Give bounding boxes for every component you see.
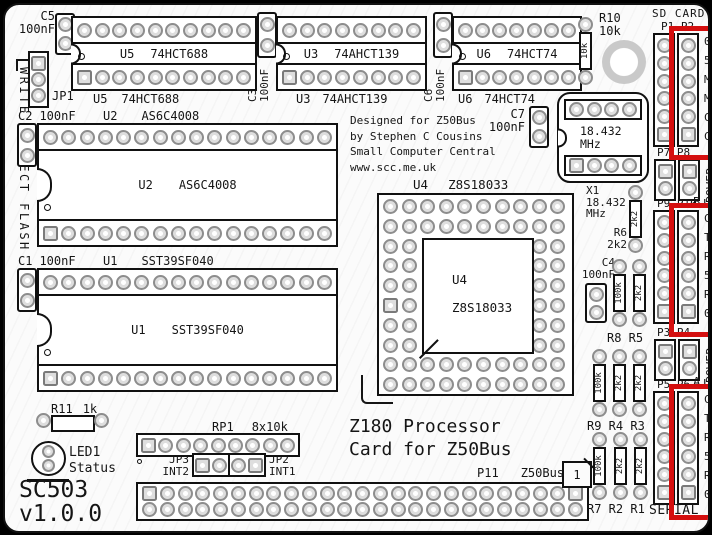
pad (632, 402, 647, 417)
u1-silk-ref: U1 (103, 254, 117, 268)
jp3-int2: INT2 (163, 465, 190, 478)
c7-label: C7 100nF (485, 108, 525, 134)
pad (383, 298, 398, 313)
pad (355, 502, 370, 517)
pad (98, 130, 113, 145)
p11-pins-top (142, 486, 583, 501)
pad (371, 70, 386, 85)
pad (61, 130, 76, 145)
pad (391, 502, 406, 517)
rp1-pin1-dot (137, 459, 142, 464)
r4-value: 2k2 (614, 375, 624, 391)
pad (458, 23, 473, 38)
pad (31, 72, 46, 87)
pad (444, 502, 459, 517)
pad (244, 226, 259, 241)
pad (195, 486, 210, 501)
u5-silk-ref: U5 (93, 92, 107, 106)
pad (402, 338, 417, 353)
pad (550, 298, 565, 313)
pad (492, 70, 507, 85)
pad (568, 502, 583, 517)
c1-value: 100nF (39, 254, 75, 268)
pad (495, 357, 510, 372)
pad (207, 226, 222, 241)
pad (171, 226, 186, 241)
pad (622, 158, 637, 173)
pad (178, 502, 193, 517)
board-title-line-1: Z180 Processor (349, 415, 512, 438)
pad (550, 318, 565, 333)
resistor-r11 (51, 415, 95, 432)
u2-silk-ref: U2 (103, 109, 117, 123)
resistor-r1: 2k2 (632, 432, 648, 500)
r3-value: 2k2 (634, 375, 644, 391)
pad (383, 278, 398, 293)
jp2-label: JP2 INT1 (269, 454, 296, 478)
pad (550, 199, 565, 214)
pad (195, 502, 210, 517)
pad (458, 70, 473, 85)
pad (439, 219, 454, 234)
pad (153, 226, 168, 241)
pad (302, 502, 317, 517)
rp1-value: 8x10k (252, 420, 288, 434)
pad (388, 70, 403, 85)
pad (402, 377, 417, 392)
pad (550, 502, 565, 517)
pad (141, 438, 156, 453)
pad (658, 164, 673, 179)
pad (201, 23, 216, 38)
pad (266, 486, 281, 501)
credits-line-4: www.scc.me.uk (350, 160, 496, 176)
c2-ref: C2 (18, 109, 32, 123)
x1-freq-inner: 18.432 (580, 125, 642, 138)
pad (569, 102, 584, 117)
pad (218, 70, 233, 85)
c4-label: C4 100nF (579, 257, 615, 281)
pad (550, 357, 565, 372)
pad (408, 486, 423, 501)
pad (578, 70, 593, 85)
pad (213, 502, 228, 517)
pad (622, 102, 637, 117)
board-version: v1.0.0 (19, 502, 102, 526)
pad (317, 130, 332, 145)
pad (165, 23, 180, 38)
board-title-line-2: Card for Z50Bus (349, 438, 512, 461)
u1-silk-part: SST39SF040 (141, 254, 213, 268)
pad (148, 23, 163, 38)
resistor-r3: 2k2 (631, 349, 647, 417)
r9-value: 100k (594, 372, 604, 394)
led1-label: LED1 Status (69, 445, 116, 477)
pad (402, 258, 417, 273)
pad (515, 502, 530, 517)
r10-value-label: 10k (599, 24, 621, 38)
ic-u1: U1 SST39SF040 (37, 268, 338, 392)
pad (592, 402, 607, 417)
pad (226, 226, 241, 241)
pad (476, 199, 491, 214)
pad (533, 502, 548, 517)
pad (80, 226, 95, 241)
pad (457, 199, 472, 214)
pad (95, 70, 110, 85)
u2-pins-top (39, 125, 336, 149)
u5-part: 74HCT688 (150, 47, 208, 61)
pad (462, 502, 477, 517)
pad (633, 432, 648, 447)
jp2-pins (230, 455, 264, 475)
pad (462, 486, 477, 501)
pad (282, 23, 297, 38)
pad (604, 158, 619, 173)
jumper-jp1 (28, 51, 49, 108)
pad (189, 130, 204, 145)
pad (189, 226, 204, 241)
pad (337, 502, 352, 517)
r11-label: R11 1k (51, 402, 97, 416)
p11-pin1-marker: 1 (562, 461, 592, 488)
r6-value-label: 2k2 (607, 238, 627, 251)
pad (335, 23, 350, 38)
u6-part: 74HCT74 (507, 47, 558, 61)
pad (373, 502, 388, 517)
pad (20, 273, 35, 288)
pad (112, 23, 127, 38)
pad (116, 226, 131, 241)
pad (153, 130, 168, 145)
pad (513, 199, 528, 214)
pad (43, 130, 58, 145)
u2-ref: U2 (138, 178, 152, 192)
pad (213, 486, 228, 501)
pad (532, 219, 547, 234)
header-p7 (654, 159, 676, 201)
resistor-r8: 100k (611, 259, 627, 327)
r9-r4-r3-label: R9 R4 R3 (587, 419, 645, 433)
pad (207, 371, 222, 386)
capacitor-c2 (17, 123, 37, 167)
pad (189, 371, 204, 386)
resistor-r10: 10k (577, 17, 593, 85)
rp1-ref: RP1 (212, 420, 234, 434)
pad (249, 486, 264, 501)
pad (532, 357, 547, 372)
pad (211, 438, 226, 453)
pad (544, 70, 559, 85)
pad (160, 502, 175, 517)
pad (402, 298, 417, 313)
pad (280, 130, 295, 145)
pad (245, 438, 260, 453)
c5-ref: C5 (41, 9, 55, 23)
x1-pins-top (564, 99, 642, 120)
pad (550, 219, 565, 234)
credits-line-3: Small Computer Central (350, 144, 496, 160)
pad (373, 486, 388, 501)
pad (260, 17, 275, 32)
c3-value: 100nF (258, 69, 271, 102)
pad (280, 438, 295, 453)
pad (299, 371, 314, 386)
pad (509, 23, 524, 38)
pad (383, 357, 398, 372)
pad (236, 23, 251, 38)
u6-pins-bottom (454, 65, 580, 89)
board-title: Z180 Processor Card for Z50Bus (349, 415, 512, 461)
notch-icon (558, 128, 567, 147)
pad (632, 349, 647, 364)
pad (36, 413, 51, 428)
pad (633, 485, 648, 500)
pad (98, 226, 113, 241)
u3-silk-part: 74AHCT139 (322, 92, 387, 106)
pad (439, 199, 454, 214)
pad (31, 88, 46, 103)
sd-card-title: SD CARD (652, 7, 705, 20)
pad (218, 23, 233, 38)
pad (628, 238, 643, 253)
r10-value: 10k (580, 43, 590, 59)
u1-ref: U1 (131, 323, 145, 337)
r11-value: 1k (83, 402, 97, 416)
u6-ref: U6 (476, 47, 490, 61)
pad (444, 486, 459, 501)
pad (226, 130, 241, 145)
pad (31, 56, 46, 71)
pad (612, 349, 627, 364)
pad (391, 486, 406, 501)
pad (550, 377, 565, 392)
pad (592, 432, 607, 447)
pad (249, 502, 264, 517)
pad (178, 486, 193, 501)
pad (153, 371, 168, 386)
pad (402, 278, 417, 293)
capacitor-c4 (585, 283, 607, 323)
pad (20, 128, 35, 143)
pad (383, 318, 398, 333)
r6-label: R6 2k2 (601, 227, 627, 251)
pad (479, 502, 494, 517)
pad (402, 239, 417, 254)
pad (231, 486, 246, 501)
pad (153, 275, 168, 290)
pad (612, 312, 627, 327)
pad (231, 458, 246, 473)
pad (317, 275, 332, 290)
pad (497, 502, 512, 517)
u5-ref: U5 (120, 47, 134, 61)
pad (402, 357, 417, 372)
pad (561, 70, 576, 85)
pad (20, 148, 35, 163)
u4-silk-part: Z8S18033 (448, 177, 508, 192)
pad (550, 258, 565, 273)
u6-body: U6 74HCT74 (454, 42, 580, 65)
pad (189, 275, 204, 290)
x1-unit: MHz (586, 207, 606, 220)
u5-pins-bottom (73, 65, 255, 89)
u6-pins-top (454, 18, 580, 42)
pad (492, 23, 507, 38)
pad (171, 371, 186, 386)
pad (142, 502, 157, 517)
pad (497, 486, 512, 501)
pad (550, 338, 565, 353)
pcb-board: C5 100nF WRITE PROTECT FLASH JP1 U5 74HC… (3, 3, 710, 533)
pad (231, 502, 246, 517)
pad (280, 226, 295, 241)
c1-label: C1 100nF (18, 254, 76, 268)
pad (142, 486, 157, 501)
u1-pins-top (39, 270, 336, 294)
c6-value: 100nF (434, 69, 447, 102)
pad (509, 70, 524, 85)
pad (116, 130, 131, 145)
pad (160, 486, 175, 501)
p11-pins-bottom (142, 502, 583, 517)
pad (383, 199, 398, 214)
resistor-r4: 2k2 (611, 349, 627, 417)
c6-label: C6 100nF (423, 69, 447, 102)
pad (532, 318, 547, 333)
jp3-label: JP3 INT2 (153, 454, 189, 478)
pad (589, 287, 604, 302)
pad (134, 226, 149, 241)
pad (420, 377, 435, 392)
u2-body: U2 AS6C4008 (39, 149, 336, 221)
pad (260, 38, 275, 53)
pad (158, 438, 173, 453)
pad (299, 226, 314, 241)
jp3-pins (194, 455, 230, 475)
pad (578, 17, 593, 32)
x1-label: X1 18.432 MHz (586, 185, 626, 220)
pad (383, 338, 398, 353)
pad (282, 70, 297, 85)
jumper-jp3-jp2 (192, 453, 266, 477)
c3-label: C3 100nF (247, 69, 271, 102)
x1-pins-bottom (564, 155, 642, 176)
pad (436, 38, 451, 53)
u6-silk-label: U6 74HCT74 (458, 92, 535, 106)
corner-bracket (361, 375, 393, 404)
pad (420, 219, 435, 234)
pad (171, 275, 186, 290)
u4-silk-label: U4 Z8S18033 (413, 177, 508, 192)
pad (244, 130, 259, 145)
pad (513, 377, 528, 392)
pad (587, 102, 602, 117)
pad (302, 486, 317, 501)
highlight-box-p2 (669, 26, 710, 160)
pad (532, 298, 547, 313)
pad (226, 371, 241, 386)
pad (682, 164, 697, 179)
pad (383, 219, 398, 234)
c5-value: 100nF (19, 22, 55, 36)
ic-u5: U5 74HCT688 (71, 16, 257, 91)
r11-ref: R11 (51, 402, 73, 416)
u3-part: 74AHCT139 (334, 47, 399, 61)
pad (61, 371, 76, 386)
pad (43, 371, 58, 386)
pad (402, 219, 417, 234)
pad (77, 23, 92, 38)
u5-pins-top (73, 18, 255, 42)
pad (406, 23, 421, 38)
pad (532, 129, 547, 144)
pad (513, 219, 528, 234)
c1-ref: C1 (18, 254, 32, 268)
c2-label: C2 100nF (18, 109, 76, 123)
pad (420, 199, 435, 214)
u4-part: Z8S18033 (452, 300, 512, 315)
pad (262, 275, 277, 290)
pad (383, 258, 398, 273)
pad (476, 377, 491, 392)
pad (658, 181, 673, 196)
pad (112, 70, 127, 85)
pad (439, 357, 454, 372)
pad (420, 357, 435, 372)
pad (353, 23, 368, 38)
pad (80, 130, 95, 145)
ic-u3: U3 74AHCT139 (276, 16, 427, 91)
pad (457, 219, 472, 234)
pad (561, 23, 576, 38)
board-name: SC503 v1.0.0 (19, 478, 102, 526)
r10-ref: R10 (599, 11, 621, 25)
pad (207, 130, 222, 145)
pad (207, 275, 222, 290)
pad (280, 371, 295, 386)
c7-ref: C7 (511, 107, 525, 121)
pad (262, 226, 277, 241)
pad (134, 130, 149, 145)
r8-r5-label: R8 R5 (607, 331, 643, 345)
u5-silk-label: U5 74HCT688 (93, 92, 179, 106)
capacitor-c7 (529, 106, 549, 148)
r7-value: 100k (594, 455, 604, 477)
pad (80, 371, 95, 386)
pad (569, 158, 584, 173)
pad (248, 458, 263, 473)
pad (613, 432, 628, 447)
pad (244, 371, 259, 386)
pad (479, 486, 494, 501)
pad (406, 70, 421, 85)
pad (533, 486, 548, 501)
pad (550, 486, 565, 501)
pad (371, 23, 386, 38)
pad (475, 23, 490, 38)
silkscreen-credits: Designed for Z50Bus by Stephen C Cousins… (350, 113, 496, 175)
pad (532, 239, 547, 254)
pad (95, 23, 110, 38)
r10-label: R10 10k (599, 12, 621, 38)
u2-pins-bottom (39, 221, 336, 245)
pad (280, 275, 295, 290)
pad (20, 293, 35, 308)
pad (439, 377, 454, 392)
pad (171, 130, 186, 145)
pad (632, 259, 647, 274)
